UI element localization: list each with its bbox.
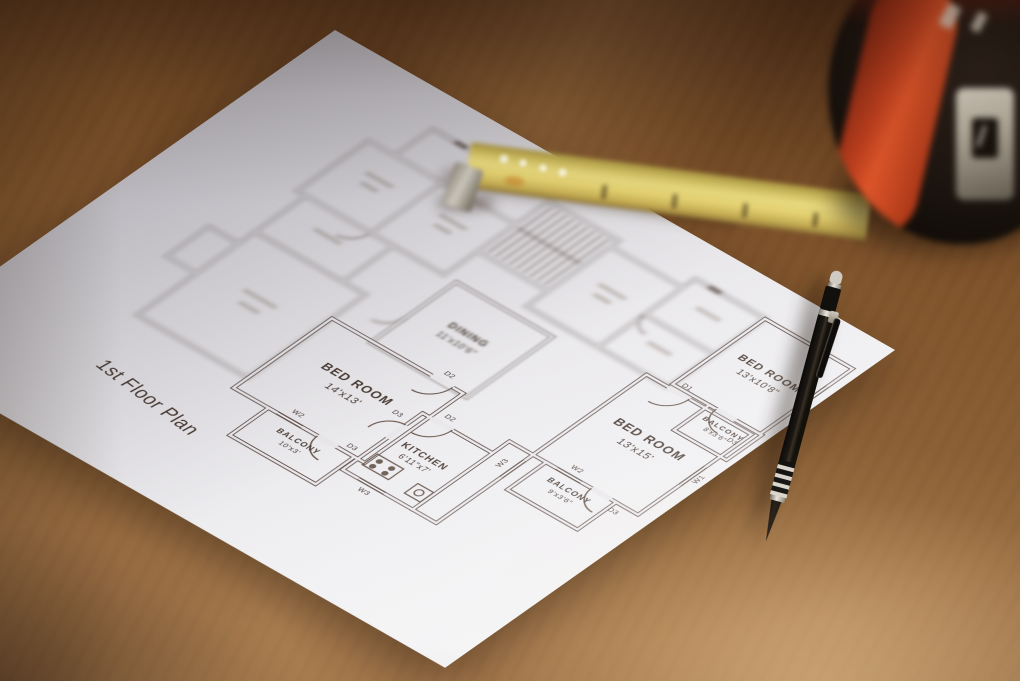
highlight-bokeh: [537, 162, 549, 174]
marker-w2-bedroom1: W2: [289, 408, 307, 419]
tape-belt-clip: [956, 88, 1014, 200]
tape-body-orange-stripe: [828, 0, 966, 244]
tape-clip-logo-mark: [977, 125, 993, 149]
marker-d3-kitchen: D3: [390, 408, 407, 418]
highlight-bokeh: [497, 152, 511, 166]
tape-measure-body: [828, 0, 1020, 244]
marker-d2-kitchen: D2: [442, 413, 459, 423]
marker-w3-corridor: W3: [493, 457, 511, 469]
marker-w2-bedroom2: W2: [569, 463, 587, 474]
photo-floor-plan-scene: DINING 11'x10'6": [0, 0, 1020, 681]
highlight-bokeh: [517, 157, 529, 169]
tape-clip-emblem: [972, 118, 998, 158]
plan-title: 1st Floor Plan: [90, 357, 205, 439]
highlight-bokeh: [556, 166, 569, 179]
plan-dining-room: DINING 11'x10'6": [370, 282, 552, 398]
marker-d2-bedroom1: D2: [442, 369, 459, 379]
